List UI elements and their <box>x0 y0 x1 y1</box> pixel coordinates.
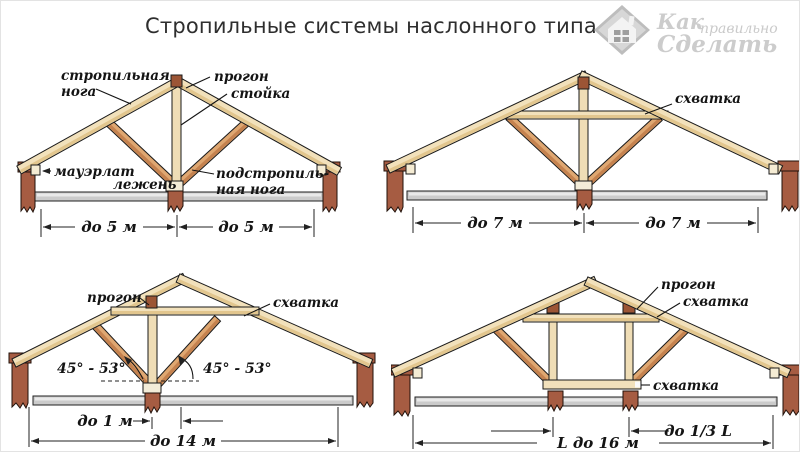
floor-slab <box>415 397 777 406</box>
tie-beam-upper <box>523 314 659 322</box>
label-purlin: прогон <box>87 290 142 306</box>
logo-house-icon <box>594 5 650 55</box>
truss-diagram-span-16m: до 1/3 L L до 16 м прогон схватка схватк… <box>391 259 800 452</box>
label-underrafter-2: ная нога <box>216 182 285 198</box>
label-post: стойка <box>231 86 290 102</box>
strut-left <box>506 114 583 186</box>
dimension-lines <box>413 207 758 233</box>
rafter-left <box>391 276 598 377</box>
strut-left <box>490 323 553 385</box>
label-tie: схватка <box>273 295 339 311</box>
rafter-left <box>12 273 187 367</box>
dim-span: L до 16 м <box>556 434 639 452</box>
strut-right <box>585 115 662 186</box>
dim-left: до 5 м <box>81 218 137 236</box>
truss-diagram-span-5m: до 5 м до 5 м стропильная нога прогон ст… <box>9 59 353 253</box>
angle-label-right: 45° - 53° <box>203 361 272 377</box>
post-beam <box>172 86 181 182</box>
dim-left: до 7 м <box>467 214 523 232</box>
center-pillar <box>168 191 183 212</box>
diagram-page: Стропильные системы наслонного типа Как … <box>0 0 800 452</box>
center-pillar <box>145 393 160 413</box>
truss-diagram-span-7m: до 7 м до 7 м схватка <box>383 61 800 247</box>
mauerlat-right <box>769 164 778 174</box>
mauerlat-left <box>31 165 40 175</box>
dim-right: до 5 м <box>218 218 274 236</box>
pillar-right <box>623 391 638 411</box>
label-rafter-leg-1: стропильная <box>61 68 170 84</box>
rafter-right <box>176 274 373 368</box>
label-tie-upper: схватка <box>683 294 749 310</box>
post-beam <box>579 87 588 183</box>
ridge-purlin-block <box>146 296 157 308</box>
mauerlat-right <box>770 368 779 378</box>
center-pillar <box>577 190 592 210</box>
label-rafter-leg-2: нога <box>61 84 96 100</box>
sleeper-block <box>143 383 161 393</box>
post-beam <box>148 315 157 385</box>
label-sleeper: лежень <box>113 177 177 193</box>
dim-offset: до 1 м <box>77 412 133 430</box>
pillar-left <box>548 391 563 411</box>
floor-slab <box>33 396 353 405</box>
strut-right <box>628 323 691 385</box>
dim-third: до 1/3 L <box>664 422 732 440</box>
tie-beam <box>501 111 668 119</box>
tie-beam <box>111 307 259 315</box>
logo-word-3: Сделать <box>657 31 777 57</box>
dim-span: до 14 м <box>150 432 216 450</box>
label-tie-lower: схватка <box>653 378 719 394</box>
mauerlat-left <box>406 164 415 174</box>
label-purlin: прогон <box>214 69 269 85</box>
label-purlin: прогон <box>661 277 716 293</box>
mauerlat-left <box>413 368 422 378</box>
page-title: Стропильные системы наслонного типа <box>91 14 651 38</box>
label-tie: схватка <box>675 91 741 107</box>
site-logo: Как правильно Сделать <box>591 3 797 57</box>
strut-left <box>90 320 154 388</box>
ridge-purlin-block <box>578 77 589 89</box>
ridge-purlin-block <box>171 75 182 87</box>
dim-right: до 7 м <box>645 214 701 232</box>
sleeper-block <box>575 181 592 190</box>
angle-label-left: 45° - 53° <box>57 361 126 377</box>
truss-diagram-span-14m: 45° - 53° 45° - 53° до 1 м до 14 м прого… <box>7 259 399 452</box>
label-underrafter-1: подстропиль- <box>216 166 330 182</box>
tie-beam-lower <box>543 380 641 389</box>
